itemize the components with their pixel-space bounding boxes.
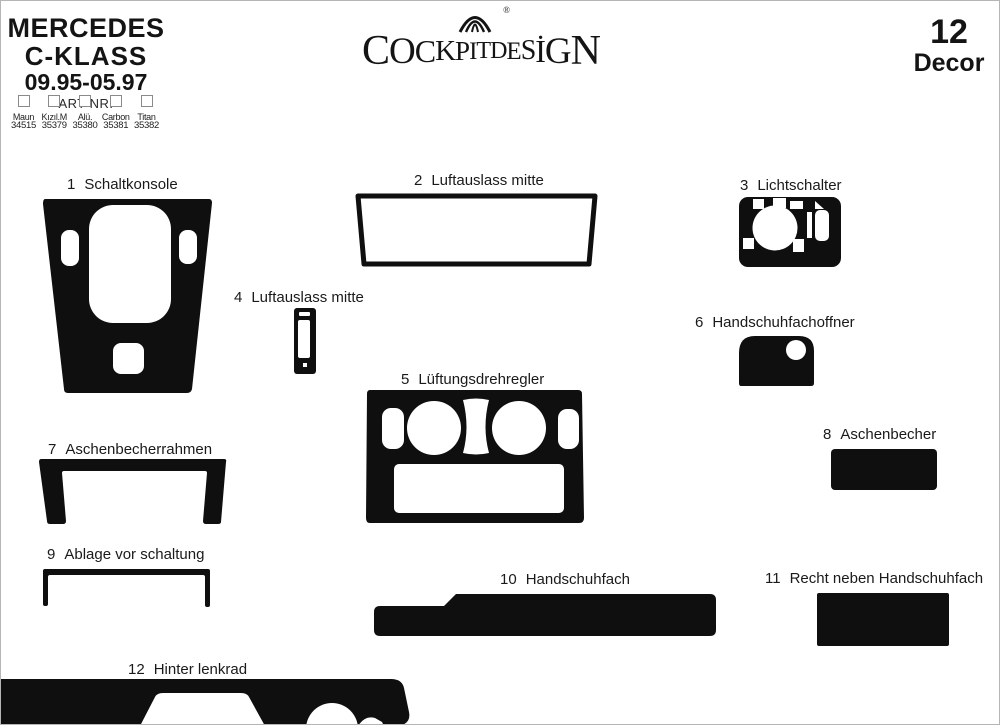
part-8-shape-aschenbecher (831, 449, 937, 490)
catalog-page: MERCEDES C-KLASS 09.95-05.97 ART NR: Mau… (0, 0, 1000, 725)
part-1-shape-schaltkonsole (43, 199, 212, 393)
part-10-shape-handschuhfach (374, 594, 716, 636)
part-7-shape-aschenbecherrahmen (39, 459, 226, 524)
parts-diagram-canvas (1, 1, 1000, 725)
part-6-shape-handschuhfachoffner (739, 336, 814, 386)
part-3-shape-lichtschalter (739, 197, 841, 267)
part-12-shape-hinter-lenkrad (1, 679, 409, 725)
part-9-shape-ablage-vor-schaltung (43, 569, 210, 607)
part-5-shape-lueftungsdrehregler (366, 390, 584, 523)
part-11-shape-recht-neben-handschuhfach (817, 593, 949, 646)
part-4-shape-luftauslass-mitte (294, 308, 316, 374)
part-2-shape-luftauslass-mitte (358, 196, 595, 264)
